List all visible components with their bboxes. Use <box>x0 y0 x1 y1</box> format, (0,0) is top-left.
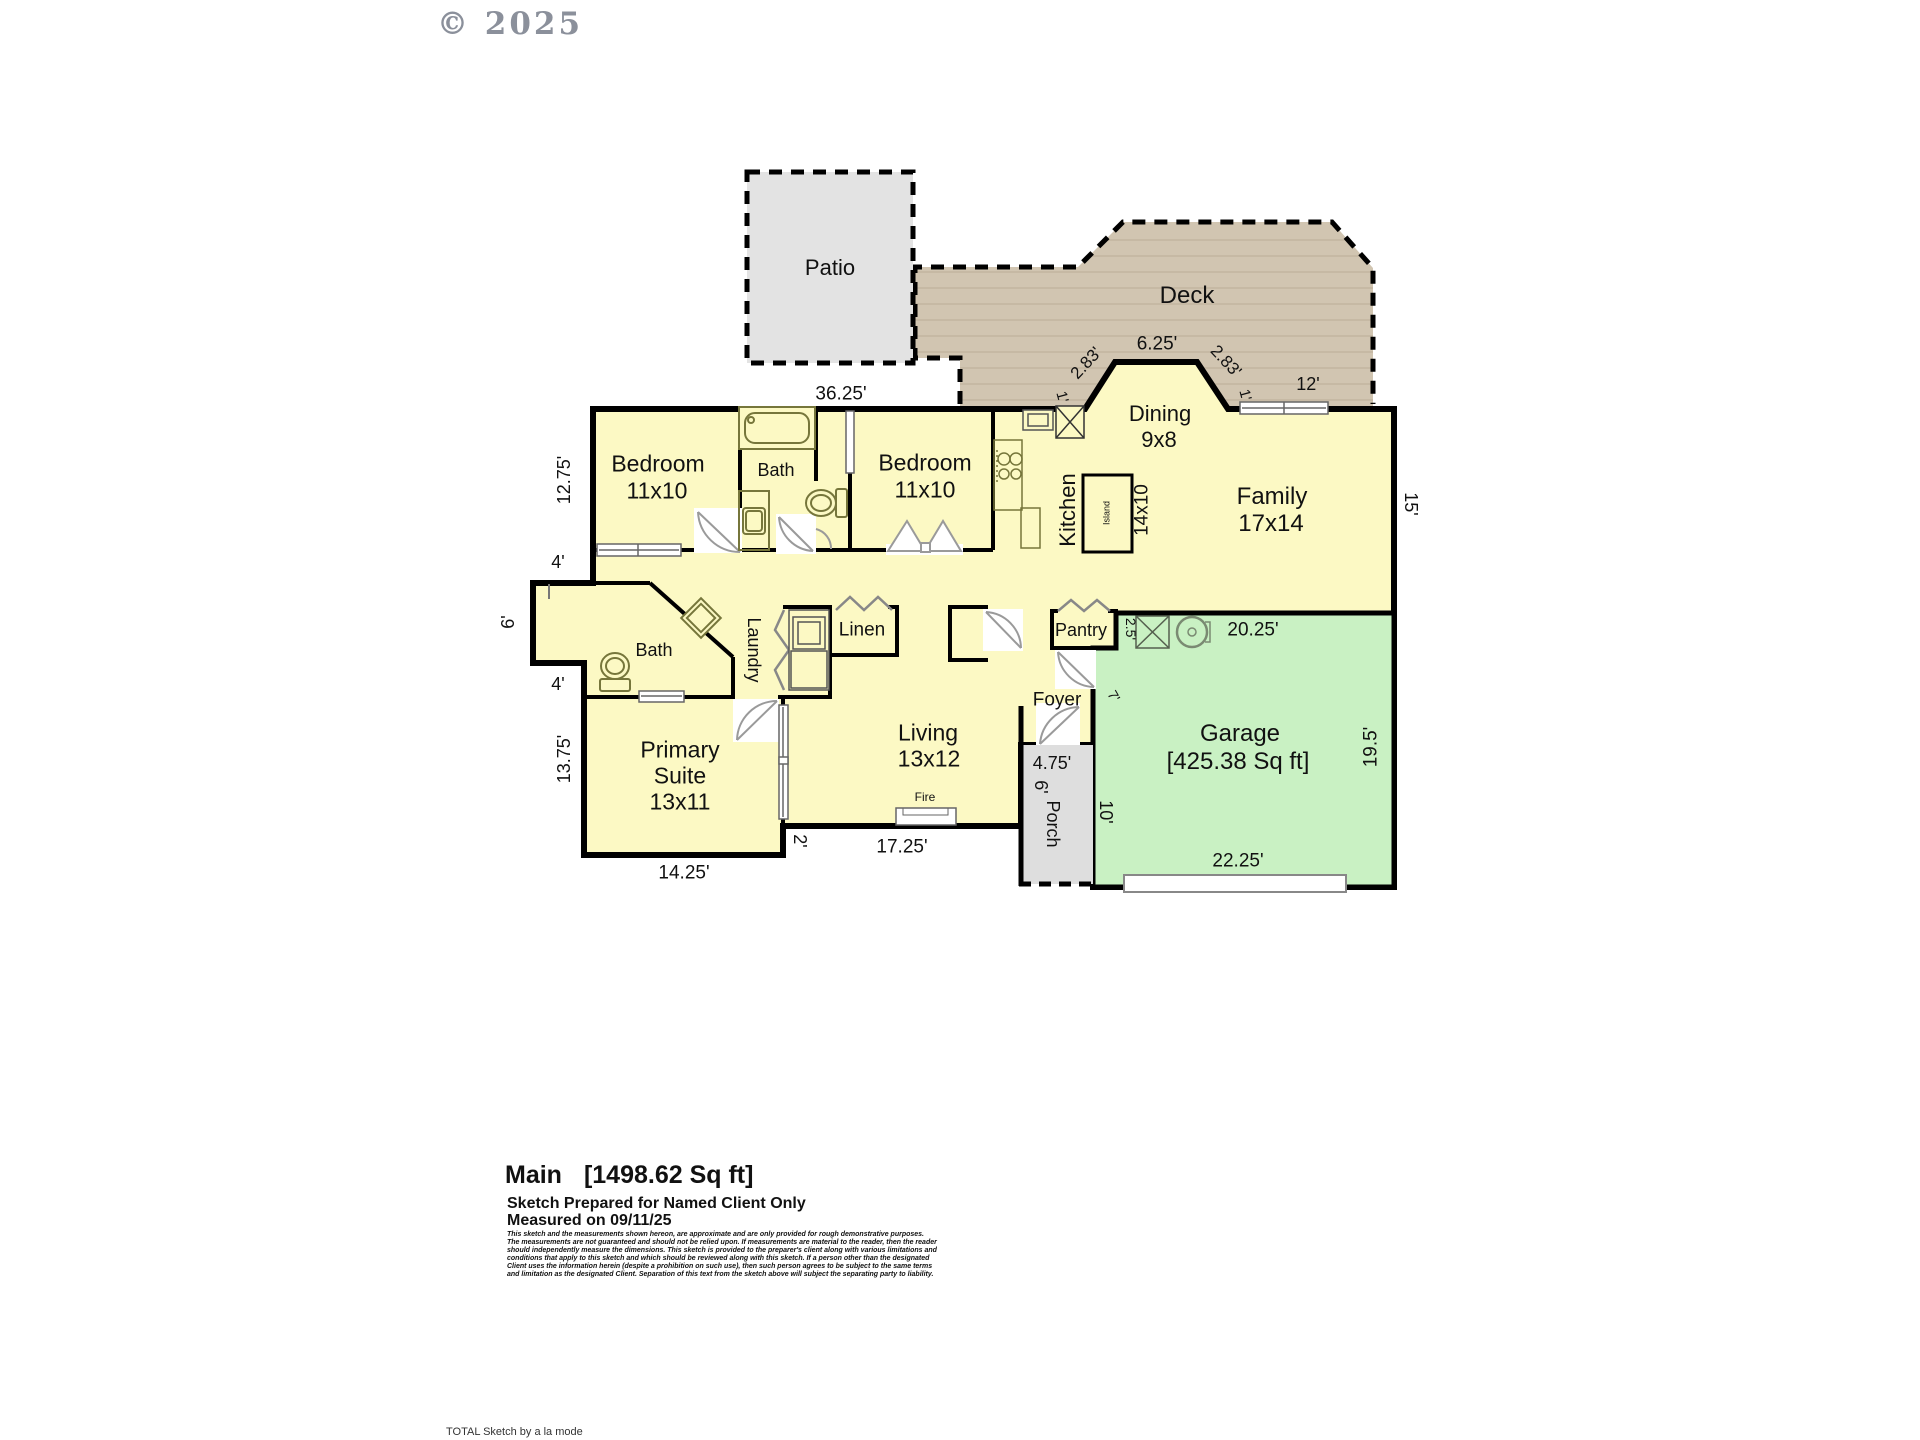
family-label: Family <box>1237 485 1308 509</box>
bedroom1-door <box>694 508 742 553</box>
disclaimer-line: should independently measure the dimensi… <box>507 1247 977 1255</box>
primary-label-1: Primary <box>640 739 719 762</box>
primary-door <box>733 699 779 742</box>
dim-hall-left-top: 4' <box>551 553 564 571</box>
bedroom2-dims: 11x10 <box>895 479 956 502</box>
bedroom2-label: Bedroom <box>878 452 971 475</box>
dining-label: Dining <box>1129 403 1191 425</box>
disclaimer-line: The measurements are not guaranteed and … <box>507 1239 977 1247</box>
garage-label: Garage <box>1200 722 1280 746</box>
bedroom1-dims: 11x10 <box>627 480 688 503</box>
washer-dryer-icon <box>789 610 829 690</box>
living-dims: 13x12 <box>898 748 961 771</box>
prepared-for-line: Sketch Prepared for Named Client Only <box>507 1195 806 1213</box>
linen-label: Linen <box>839 621 886 640</box>
dim-porch-right: 10' <box>1097 800 1115 823</box>
dim-living-bottom: 17.25' <box>876 838 927 857</box>
island-label: Island <box>1103 501 1112 525</box>
dim-pantry-side: 2.5' <box>1124 618 1138 640</box>
fireplace-icon <box>896 808 956 825</box>
dim-patio-width: 36.25' <box>815 385 866 404</box>
garage-area: [425.38 Sq ft] <box>1167 750 1310 774</box>
dim-porch-width: 6' <box>1032 780 1050 793</box>
disclaimer-line: This sketch and the measurements shown h… <box>507 1231 977 1239</box>
disclaimer-line: and limitation as the designated Client.… <box>507 1271 977 1279</box>
software-brand: TOTAL Sketch by a la mode <box>446 1426 583 1438</box>
bath2-label: Bath <box>635 641 672 659</box>
skylight-icon <box>1056 406 1084 438</box>
garage-door <box>1124 875 1346 892</box>
dim-hall-left-bottom: 4' <box>551 675 564 693</box>
garage-entry-door <box>1055 650 1096 689</box>
bath-pocket-door <box>846 411 854 473</box>
family-window <box>1240 402 1328 414</box>
dim-deck-bay: 6.25' <box>1137 335 1178 354</box>
microwave-icon <box>1023 410 1053 430</box>
bath1-label: Bath <box>757 461 794 479</box>
porch-label: Porch <box>1044 800 1062 847</box>
dim-primary-left: 13.75' <box>555 735 573 783</box>
foyer-label: Foyer <box>1033 691 1082 710</box>
patio-label: Patio <box>805 257 855 279</box>
closet-door <box>983 609 1023 651</box>
laundry-label: Laundry <box>745 617 763 682</box>
primary-dims: 13x11 <box>650 791 711 814</box>
dim-garage-bottom: 22.25' <box>1212 852 1263 871</box>
dim-family-right: 15' <box>1402 492 1420 515</box>
sheet-title-name: Main <box>505 1161 562 1190</box>
floorplan-page: © 2025 <box>0 0 1920 1440</box>
bath2-window <box>639 691 684 702</box>
dim-primary-bottom: 14.25' <box>658 864 709 883</box>
sheet-title-area: [1498.62 Sq ft] <box>584 1161 754 1190</box>
bedroom1-label: Bedroom <box>611 453 704 476</box>
pantry-label: Pantry <box>1055 621 1107 639</box>
dim-living-step: 2' <box>791 834 809 847</box>
floorplan-drawing <box>0 0 1920 1440</box>
primary-slider <box>779 705 788 819</box>
bathtub-icon <box>739 407 815 449</box>
primary-label-2: Suite <box>654 765 706 788</box>
dim-garage-right: 19.5' <box>1362 727 1381 768</box>
dim-bump-left: 6' <box>499 615 517 628</box>
living-label: Living <box>898 722 958 745</box>
disclaimer-text: This sketch and the measurements shown h… <box>507 1231 977 1279</box>
bedroom1-window <box>597 544 681 556</box>
dim-porch-top: 4.75' <box>1033 754 1071 772</box>
deck-label: Deck <box>1160 284 1215 308</box>
dim-deck-window: 12' <box>1296 375 1319 393</box>
dim-garage-top: 20.25' <box>1227 621 1278 640</box>
kitchen-dims: 14x10 <box>1133 484 1152 536</box>
measured-on-line: Measured on 09/11/25 <box>507 1212 672 1230</box>
bath-door <box>776 514 816 554</box>
disclaimer-line: conditions that apply to this sketch and… <box>507 1255 977 1263</box>
sheet-title: Main [1498.62 Sq ft] <box>505 1161 753 1190</box>
family-dims: 17x14 <box>1238 512 1303 536</box>
dim-bedroom-left: 12.75' <box>555 456 573 504</box>
dining-dims: 9x8 <box>1141 429 1176 451</box>
fireplace-label: Fire <box>915 791 936 803</box>
kitchen-label: Kitchen <box>1057 473 1079 546</box>
disclaimer-line: Client uses the information herein (desp… <box>507 1263 977 1271</box>
